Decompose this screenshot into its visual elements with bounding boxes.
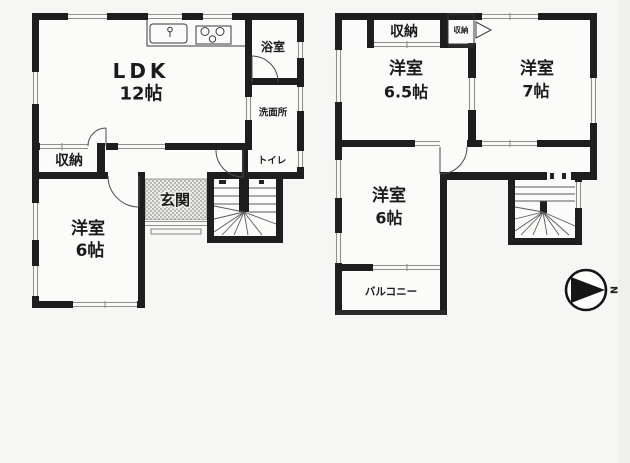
room-balcony-label: バルコニー [365,286,417,298]
sliding-door [482,140,537,147]
window [335,50,342,102]
north-label: N [608,286,619,294]
room-washroom-label: 洗面所 [259,107,288,119]
window [590,78,597,123]
window [373,264,440,271]
window [73,301,137,308]
room-65-size: 6.5帖 [384,83,428,102]
sliding-door [40,143,88,150]
floorplan-canvas: LDK 12帖 浴室 洗面所 トイレ 収納 玄関 洋室 6帖 [0,0,630,463]
room-entrance-label: 玄関 [160,191,190,209]
balcony-rail [336,310,446,315]
window [575,182,582,208]
window [297,87,304,111]
window [297,151,304,167]
room-toilet-label: トイレ [258,156,287,167]
room-west-size: 6帖 [76,240,105,261]
room-storage-1f-label: 収納 [55,152,83,169]
floor1-plan: LDK 12帖 浴室 洗面所 トイレ 収納 玄関 洋室 6帖 [32,13,304,308]
window [68,13,107,20]
room-west-label: 洋室 [71,218,105,239]
room-65-label: 洋室 [389,58,423,79]
window [297,42,304,58]
room-7-label: 洋室 [520,58,554,79]
room-6-label: 洋室 [372,185,406,206]
window [148,13,182,20]
closet-sliding-door [374,41,440,48]
room-storage-2f-label: 収納 [390,23,418,40]
window [32,72,39,104]
window [335,233,342,263]
front-door [145,220,207,227]
sliding-door [468,78,476,110]
room-ldk-label: LDK [113,59,170,83]
room-storage-small-label: 収納 [454,25,469,35]
sliding-door [415,140,440,147]
room-6-size: 6帖 [375,209,402,228]
washroom-door [245,97,252,120]
window [203,13,232,20]
room-ldk-size: 12帖 [119,83,162,105]
window [482,13,538,20]
small-closet-front [448,44,474,48]
floorplan-drawing: LDK 12帖 浴室 洗面所 トイレ 収納 玄関 洋室 6帖 [0,0,630,463]
room-7-size: 7帖 [522,82,549,101]
room-bath-label: 浴室 [261,39,285,54]
window [32,203,39,240]
window [32,266,39,296]
window [335,160,342,198]
floor2-plan: 収納 収納 洋室 6.5帖 洋室 7帖 洋室 6帖 バルコニー [335,13,597,315]
scan-edge-artifact [618,0,630,463]
sliding-door [118,143,165,150]
compass: N [566,270,619,310]
